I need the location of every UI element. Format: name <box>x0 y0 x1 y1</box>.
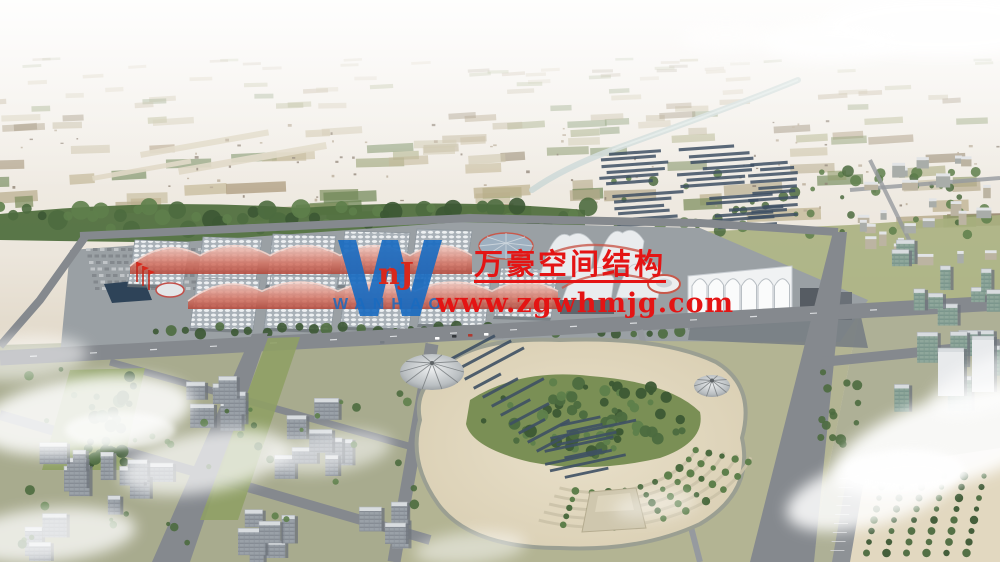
watermark-website: www.zgwhmjg.com <box>436 288 734 319</box>
logo-latin-text: WANHAO <box>333 296 448 314</box>
watermark-company-name: 万豪空间结构 <box>474 249 666 283</box>
aerial-rendering: nJ WANHAO 万豪空间结构 www.zgwhmjg.com <box>0 0 1000 562</box>
logo-emblem: nJ <box>378 257 414 292</box>
central-park <box>400 334 752 548</box>
